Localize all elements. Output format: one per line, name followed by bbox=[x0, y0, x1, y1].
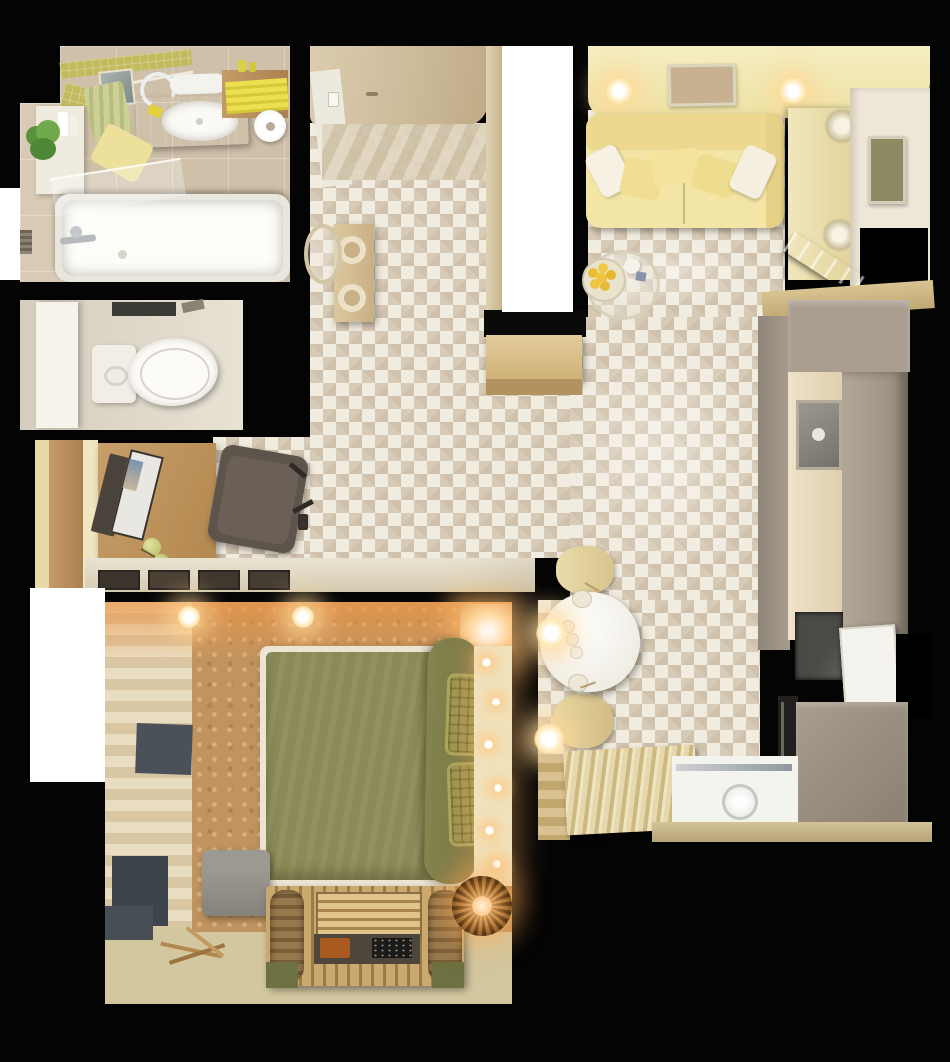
wooden-storage-bench bbox=[486, 335, 582, 381]
tub-drain bbox=[118, 250, 127, 259]
balcony-glass-sconce bbox=[722, 784, 758, 820]
toilet-tall-cabinet bbox=[36, 302, 78, 428]
framed-art-right bbox=[868, 136, 906, 204]
kitchen-cabinet-right-run bbox=[842, 372, 908, 640]
chair-base bbox=[298, 514, 308, 530]
storage-bench-front bbox=[486, 379, 582, 395]
kitchen-island-block bbox=[796, 702, 908, 826]
blue-napkin bbox=[635, 271, 646, 282]
light-switch bbox=[328, 92, 339, 107]
wicker-lamp-core bbox=[472, 896, 492, 916]
oval-wall-mirror bbox=[304, 224, 342, 284]
bedroom-spotlight-1 bbox=[178, 606, 200, 628]
gray-pouf bbox=[202, 850, 270, 916]
toilet-seat-line bbox=[140, 348, 210, 400]
cup-3 bbox=[570, 646, 583, 659]
basin-drain bbox=[196, 118, 203, 125]
yellow-striped-towels bbox=[225, 78, 289, 114]
ledge-frame-3 bbox=[198, 570, 240, 590]
window-cutout-left-large bbox=[30, 588, 105, 782]
plant-leaf-3 bbox=[30, 138, 56, 160]
door-handle bbox=[366, 92, 378, 96]
lemons bbox=[597, 273, 607, 283]
wall-sconce-1 bbox=[606, 78, 632, 104]
string-light-4 bbox=[494, 784, 502, 792]
cup-2 bbox=[566, 633, 579, 646]
slate-panel-3 bbox=[105, 906, 153, 940]
cutout-frame-band bbox=[484, 310, 586, 337]
entry-doormat bbox=[322, 124, 488, 180]
plate-bottom bbox=[568, 674, 588, 692]
office-chair-seat bbox=[216, 454, 301, 545]
sink-drain bbox=[812, 428, 825, 441]
framed-art-top bbox=[668, 63, 737, 106]
shampoo-bottle-2 bbox=[70, 116, 78, 136]
glow-pendant-1 bbox=[536, 618, 566, 648]
string-light-1 bbox=[482, 658, 491, 667]
desk-wall-band-yellow bbox=[35, 440, 49, 597]
dining-chair-top bbox=[556, 546, 614, 594]
string-light-3 bbox=[484, 740, 493, 749]
toilet-ceiling-light bbox=[112, 302, 176, 316]
kitchen-top-cabinet-block bbox=[788, 300, 910, 372]
yellow-bottle bbox=[238, 60, 246, 72]
ledge-frame-4 bbox=[248, 570, 290, 590]
wall-sconce-2 bbox=[780, 78, 806, 104]
desk-wall-band-wood bbox=[49, 440, 83, 597]
sofa-back-cushion bbox=[586, 114, 784, 150]
floor-light-sheen bbox=[555, 330, 770, 580]
bench-green-foot-right bbox=[432, 962, 464, 988]
window-cutout-top bbox=[502, 46, 573, 312]
storage-box-item-amber bbox=[320, 938, 350, 958]
apartment-floorplan-render bbox=[0, 0, 950, 1062]
string-light-5 bbox=[485, 826, 494, 835]
string-light-2 bbox=[492, 698, 500, 706]
yellow-bottle-2 bbox=[249, 62, 256, 72]
kitchen-cabinet-left-run bbox=[758, 316, 790, 650]
headboard bbox=[474, 646, 512, 886]
plate-top bbox=[572, 590, 592, 608]
ledge-frame-1 bbox=[98, 570, 140, 590]
breakfast-tray bbox=[316, 892, 422, 938]
toilet-paper-core bbox=[266, 122, 275, 131]
glow-pendant-2 bbox=[534, 724, 564, 754]
string-light-6 bbox=[493, 860, 501, 868]
ledge-frame-2 bbox=[148, 570, 190, 590]
toilet-flush-button bbox=[104, 366, 128, 386]
threshold-rail bbox=[676, 764, 792, 771]
storage-box-item-dark bbox=[372, 938, 412, 958]
slate-panel-1 bbox=[135, 723, 193, 775]
shower-head bbox=[70, 226, 82, 238]
wall-vent bbox=[20, 230, 32, 254]
bedroom-spotlight-2 bbox=[292, 606, 314, 628]
bench-green-foot-left bbox=[266, 962, 298, 988]
cooktop bbox=[795, 612, 843, 680]
wardrobe-divider bbox=[486, 46, 502, 314]
vanity-upper-tray bbox=[170, 73, 227, 95]
tan-threshold-strip bbox=[652, 822, 932, 842]
console-vase-1 bbox=[338, 236, 366, 264]
console-vase-2 bbox=[338, 284, 366, 312]
open-window-sash bbox=[839, 624, 901, 714]
window-cutout-left-small bbox=[0, 188, 20, 280]
